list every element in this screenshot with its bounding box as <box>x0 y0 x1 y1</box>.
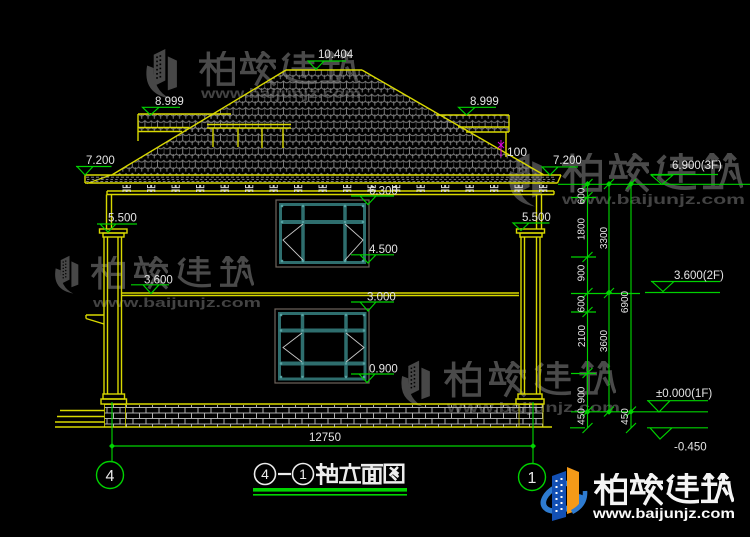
svg-text:8.999: 8.999 <box>470 96 499 108</box>
svg-text:450: 450 <box>620 408 631 425</box>
svg-text:3.600: 3.600 <box>144 275 173 287</box>
svg-text:0.900: 0.900 <box>369 364 398 376</box>
svg-text:www.baijunjz.com: www.baijunjz.com <box>92 295 261 310</box>
svg-text:900: 900 <box>577 386 588 403</box>
svg-text:4.500: 4.500 <box>369 244 398 256</box>
svg-text:900: 900 <box>577 264 588 281</box>
svg-text:6.900(3F): 6.900(3F) <box>672 160 722 172</box>
svg-text:1: 1 <box>299 466 307 482</box>
svg-text:10.404: 10.404 <box>318 49 354 61</box>
svg-text:7.200: 7.200 <box>553 155 582 167</box>
svg-text:3.000: 3.000 <box>367 292 396 304</box>
svg-text:4: 4 <box>106 468 115 485</box>
svg-text:3.600(2F): 3.600(2F) <box>674 270 724 282</box>
svg-text:3600: 3600 <box>599 329 610 352</box>
svg-text:7.200: 7.200 <box>86 155 115 167</box>
svg-text:2100: 2100 <box>577 324 588 347</box>
svg-text:450: 450 <box>577 408 588 425</box>
svg-text:100: 100 <box>507 145 527 159</box>
svg-text:6900: 6900 <box>620 290 631 313</box>
svg-text:5.500: 5.500 <box>522 212 551 224</box>
svg-text:±0.000(1F): ±0.000(1F) <box>656 388 712 400</box>
svg-text:4: 4 <box>261 466 269 482</box>
svg-text:5.500: 5.500 <box>108 213 137 225</box>
svg-text:-0.450: -0.450 <box>674 442 707 454</box>
svg-text:1800: 1800 <box>577 217 588 240</box>
svg-text:www.baijunjz.com: www.baijunjz.com <box>560 191 745 207</box>
svg-text:www.baijunjz.com: www.baijunjz.com <box>592 506 735 521</box>
svg-text:6.300: 6.300 <box>369 186 398 198</box>
svg-text:600: 600 <box>577 295 588 312</box>
svg-text:1: 1 <box>528 470 537 487</box>
svg-text:12750: 12750 <box>309 432 341 444</box>
svg-text:8.999: 8.999 <box>155 96 184 108</box>
svg-text:600: 600 <box>577 187 588 204</box>
svg-text:3300: 3300 <box>599 226 610 249</box>
